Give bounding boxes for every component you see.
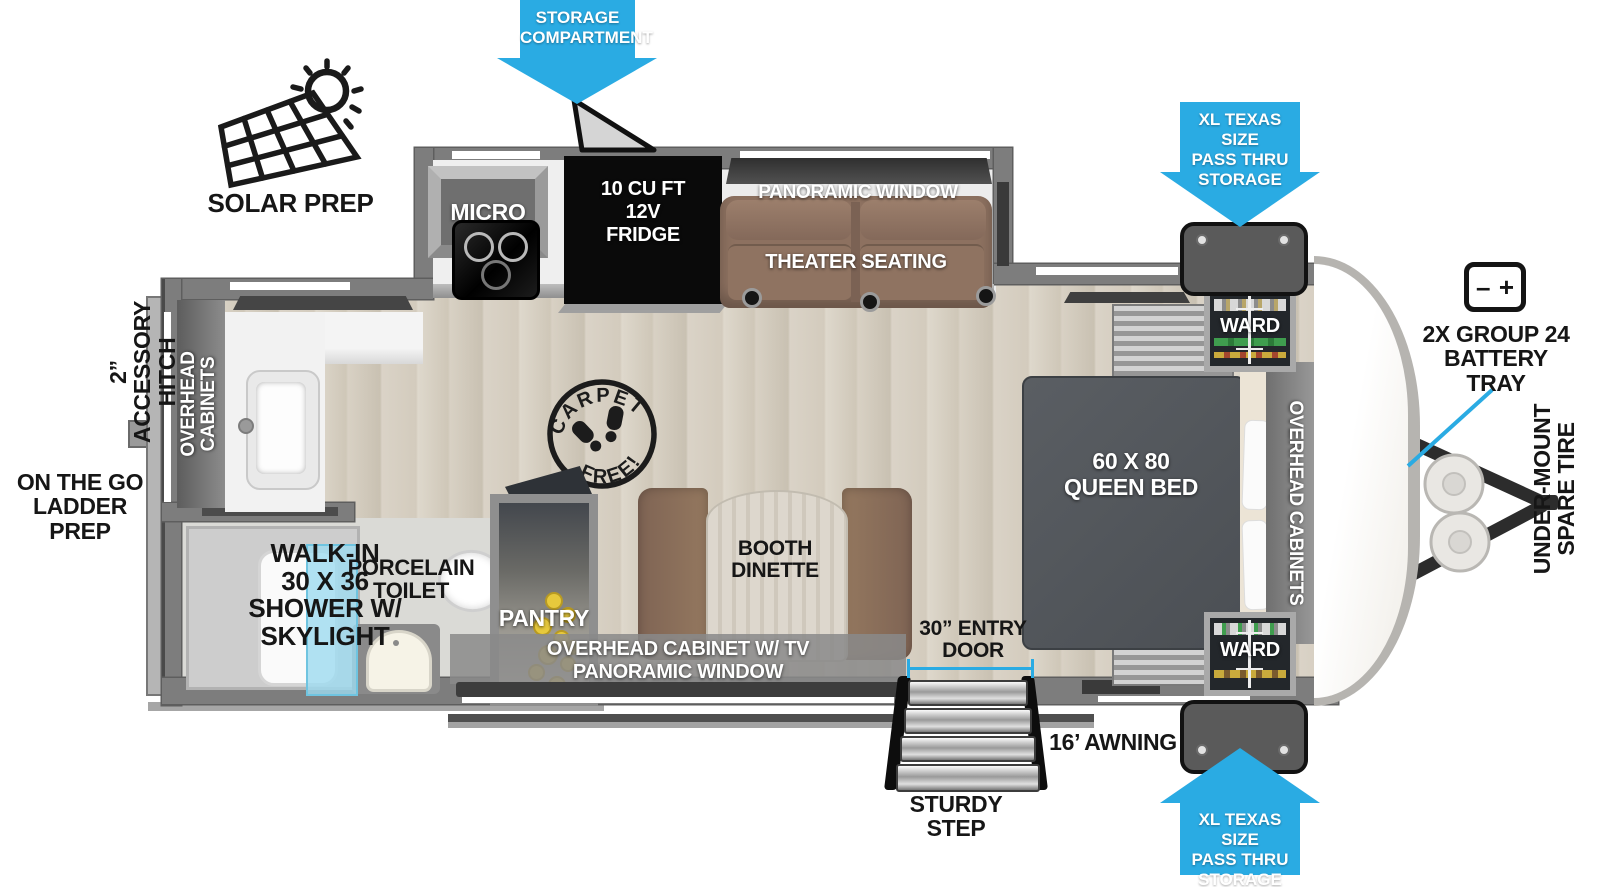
sturdy-step-label: STURDY STEP <box>898 792 1014 841</box>
burner-icon <box>464 232 494 262</box>
vent-bedroom-wall <box>1064 292 1190 303</box>
battery-leader-line <box>1402 386 1498 472</box>
rear-cabinet-vent <box>233 296 413 310</box>
step-tread <box>900 736 1036 762</box>
pass-thru-arrow-top: XL TEXAS SIZE PASS THRU STORAGE <box>1160 102 1320 228</box>
window-rear-top <box>230 282 350 290</box>
ward-hanger-icon <box>1236 632 1263 634</box>
solar-prep-icon <box>215 55 375 195</box>
panoramic-window-top-label: PANORAMIC WINDOW <box>722 183 994 203</box>
pass-thru-box-top <box>1180 222 1308 296</box>
rear-overhead-cabinets-label: OVERHEAD CABINETS <box>179 304 223 504</box>
shoe-print-icon <box>569 418 605 455</box>
theater-seat-back <box>860 200 986 240</box>
pass-thru-top-label: XL TEXAS SIZE PASS THRU STORAGE <box>1180 110 1300 190</box>
ward-bottom-label: WARD <box>1204 640 1296 661</box>
ward-hanger-icon <box>1236 348 1263 350</box>
theater-seat-back <box>726 200 852 240</box>
pantry-label: PANTRY <box>490 606 598 630</box>
shoe-print-icon <box>603 405 625 444</box>
ladder-prep-label: ON THE GO LADDER PREP <box>0 470 160 543</box>
spare-tire-label: UNDER-MOUNT SPARE TIRE <box>1530 399 1582 579</box>
queen-bed <box>1022 376 1246 650</box>
panoramic-window-bottom <box>456 682 900 697</box>
bedroom-overhead-cabinets-label: OVERHEAD CABINETS <box>1279 368 1305 638</box>
fridge-label: 10 CU FT 12V FRIDGE <box>566 178 720 247</box>
micro-label: MICRO <box>428 200 548 224</box>
screw-icon <box>1196 234 1208 246</box>
theater-seating-label: THEATER SEATING <box>728 252 984 273</box>
pass-thru-bottom-label: XL TEXAS SIZE PASS THRU STORAGE <box>1180 810 1300 887</box>
storage-compartment-arrow: STORAGE COMPARTMENT <box>497 0 658 104</box>
step-tread <box>908 680 1028 706</box>
panoramic-window-top <box>726 158 992 184</box>
screw-icon <box>1278 234 1290 246</box>
queen-bed-label: 60 X 80 QUEEN BED <box>1036 448 1226 501</box>
tv-cabinet-label: OVERHEAD CABINET W/ TV PANORAMIC WINDOW <box>452 638 904 684</box>
window-slide-top-right <box>740 151 990 159</box>
ward-hanger-icon <box>1236 668 1263 670</box>
battery-tray-label: 2X GROUP 24 BATTERY TRAY <box>1416 322 1576 395</box>
kitchen-sink-basin <box>256 382 306 474</box>
window-slide-side <box>997 182 1009 266</box>
window-bedroom-top <box>1036 267 1178 275</box>
entry-door-label: 30” ENTRY DOOR <box>910 618 1036 663</box>
ward-top-label: WARD <box>1204 316 1296 337</box>
rv-floorplan-diagram: CARPET FREE! MICRO 10 CU FT <box>0 0 1600 887</box>
storage-compartment-label: STORAGE COMPARTMENT <box>520 8 635 48</box>
burner-icon <box>498 232 528 262</box>
accessory-hitch-label: 2” ACCESSORY HITCH <box>106 287 156 457</box>
burner-icon <box>481 260 511 290</box>
ward-hanger-icon <box>1236 308 1263 310</box>
window-slide-top-left <box>452 151 540 159</box>
sill-bottom <box>462 697 894 703</box>
cupholder-icon <box>742 288 762 308</box>
step-tread <box>904 708 1032 734</box>
cupholder-icon <box>860 292 880 312</box>
battery-minus: – <box>1476 274 1490 300</box>
pass-thru-arrow-bottom: XL TEXAS SIZE PASS THRU STORAGE <box>1160 748 1320 876</box>
cupholder-icon <box>976 286 996 306</box>
sturdy-step <box>891 674 1041 796</box>
battery-plus: + <box>1499 274 1514 300</box>
kitchen-sink <box>246 370 320 490</box>
storage-flap <box>560 96 662 160</box>
battery-icon: – + <box>1464 262 1526 312</box>
toilet-label: PORCELAIN TOILET <box>338 556 484 603</box>
step-tread <box>896 764 1040 792</box>
kitchen-faucet-icon <box>238 418 254 434</box>
booth-dinette-label: BOOTH DINETTE <box>708 538 842 583</box>
